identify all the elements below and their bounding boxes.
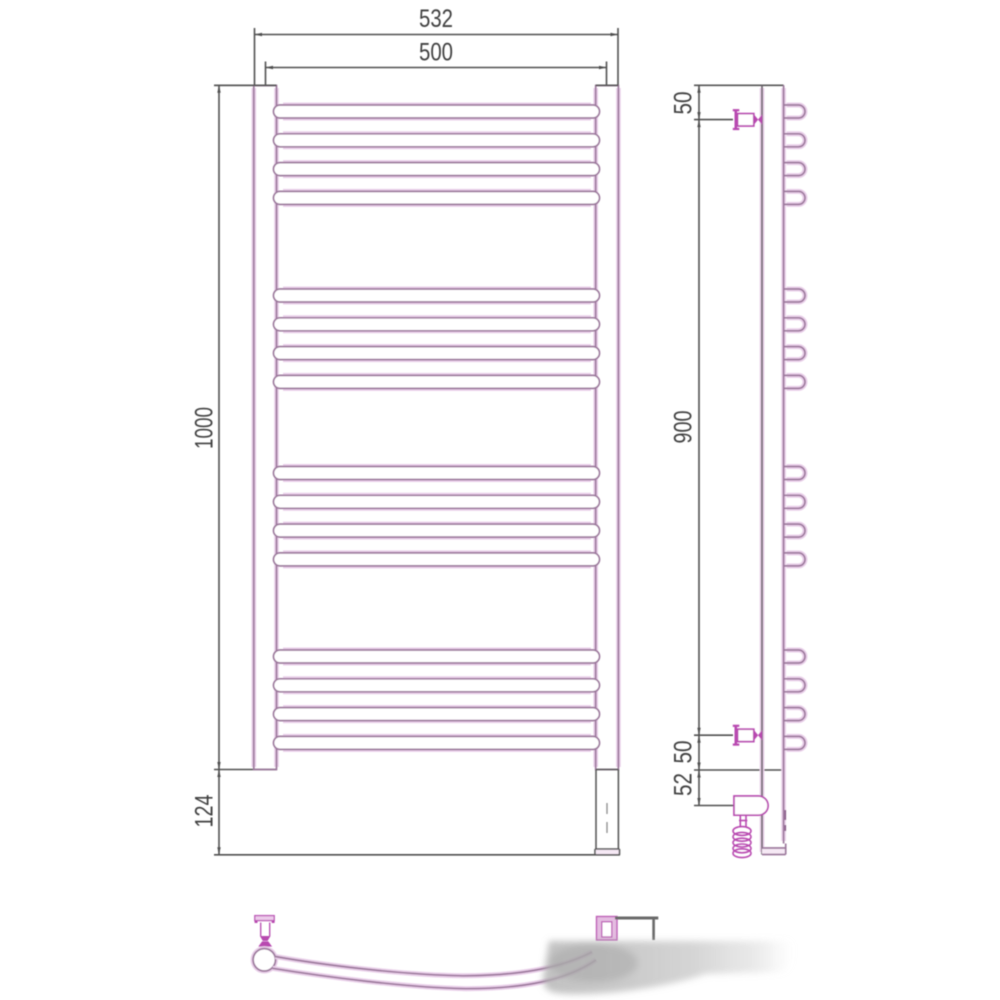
svg-text:900: 900 [670,411,698,444]
svg-text:500: 500 [419,39,453,67]
svg-text:50: 50 [670,741,698,764]
svg-text:50: 50 [670,92,698,115]
svg-text:532: 532 [419,5,453,33]
svg-text:124: 124 [191,794,219,827]
svg-text:52: 52 [670,773,698,796]
svg-text:1000: 1000 [191,407,219,449]
